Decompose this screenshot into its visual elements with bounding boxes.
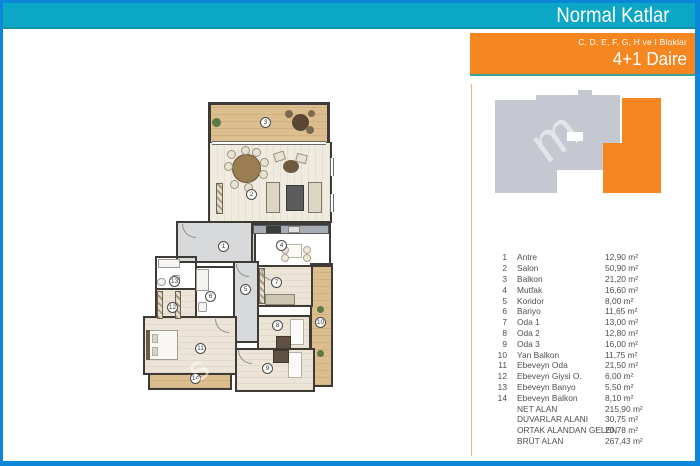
bathtub <box>158 259 180 268</box>
room-no: 14 <box>493 393 507 403</box>
room-name: Oda 2 <box>517 328 605 338</box>
dining-table <box>232 154 261 183</box>
desk-chair <box>273 350 289 363</box>
room-row: 11Ebeveyn Oda21,50 m² <box>493 360 685 371</box>
room-marker: 13 <box>169 276 180 287</box>
summary-label: ORTAK ALANDAN GELEN <box>517 425 605 435</box>
header-band: Normal Katlar <box>3 3 695 29</box>
room-marker: 7 <box>271 277 282 288</box>
toilet <box>198 302 207 312</box>
floorplan-flyer: Normal Katlar C, D, E, F, G, H ve I Blok… <box>0 0 700 466</box>
radiator <box>216 183 223 214</box>
room-no: 8 <box>493 328 507 338</box>
summary-area: 215,90 m² <box>605 404 685 414</box>
room-area: 21,50 m² <box>605 360 685 370</box>
building-footprint-map: m <box>490 88 670 200</box>
room-no: 10 <box>493 350 507 360</box>
room-row: 8Oda 212,80 m² <box>493 328 685 339</box>
room-no: 5 <box>493 296 507 306</box>
kitchen-chair <box>303 254 311 262</box>
summary-label: BRÜT ALAN <box>517 436 605 446</box>
room-row: 4Mutfak16,60 m² <box>493 284 685 295</box>
room-row: 12Ebeveyn Giysi O.6,00 m² <box>493 371 685 382</box>
room-marker: 3 <box>260 117 271 128</box>
room-no: 2 <box>493 263 507 273</box>
floor-plan: 1 2 3 4 5 6 7 8 9 10 11 12 13 14 s <box>140 98 345 398</box>
desk <box>288 352 302 378</box>
plant-icon <box>212 118 221 127</box>
room-row: 13Ebeveyn Banyo5,50 m² <box>493 382 685 393</box>
dining-chair <box>241 146 250 155</box>
room-name: Balkon <box>517 274 605 284</box>
room-row: 9Oda 316,00 m² <box>493 338 685 349</box>
plant-icon <box>317 350 324 357</box>
room-name: Koridor <box>517 296 605 306</box>
footprint-highlight-upper <box>622 98 661 144</box>
room-area: 5,50 m² <box>605 382 685 392</box>
room-name: Oda 3 <box>517 339 605 349</box>
room-no: 9 <box>493 339 507 349</box>
balcony-chair <box>306 126 314 134</box>
pillow <box>152 334 158 343</box>
room-name: Salon <box>517 263 605 273</box>
room-no: 3 <box>493 274 507 284</box>
sofa <box>308 182 322 213</box>
room-marker: 14 <box>190 373 201 384</box>
tv-unit <box>286 185 304 211</box>
footprint-block-bump <box>578 90 592 96</box>
unit-badge-blocks: C, D, E, F, G, H ve I Bloklar <box>470 37 687 47</box>
dining-chair <box>252 148 261 157</box>
summary-area: 30,75 m² <box>605 414 685 424</box>
room-no: 13 <box>493 382 507 392</box>
page-title: Normal Katlar <box>556 4 669 28</box>
plant-icon <box>317 306 324 313</box>
room-area: 16,00 m² <box>605 339 685 349</box>
room-row: 10Yan Balkon11,75 m² <box>493 349 685 360</box>
balcony-chair <box>285 110 293 118</box>
room-area: 6,00 m² <box>605 371 685 381</box>
kitchen-chair <box>303 246 311 254</box>
room-no: 7 <box>493 317 507 327</box>
room-row: 2Salon50,90 m² <box>493 263 685 274</box>
room-marker: 6 <box>205 291 216 302</box>
room-name: Banyo <box>517 306 605 316</box>
room-marker: 10 <box>315 317 326 328</box>
dining-chair <box>260 158 269 167</box>
dining-chair <box>230 180 239 189</box>
coffee-table <box>283 160 299 173</box>
room-marker: 8 <box>272 320 283 331</box>
footprint-highlight-lower <box>603 143 661 193</box>
summary-area: 20,78 m² <box>605 425 685 435</box>
room-area: 12,80 m² <box>605 328 685 338</box>
room-name: Ebeveyn Balkon <box>517 393 605 403</box>
room-name: Ebeveyn Giysi O. <box>517 371 605 381</box>
wardrobe <box>157 291 163 319</box>
room-marker: 2 <box>246 189 257 200</box>
room-marker: 1 <box>218 241 229 252</box>
balcony-chair <box>308 110 315 117</box>
room-marker: 11 <box>195 343 206 354</box>
room-name: Ebeveyn Oda <box>517 360 605 370</box>
room-marker: 4 <box>276 240 287 251</box>
desk-chair <box>276 336 291 349</box>
room-name: Oda 1 <box>517 317 605 327</box>
bed-headboard <box>146 330 150 360</box>
dining-chair <box>259 170 268 179</box>
frame-bottom <box>0 461 700 466</box>
unit-badge-type: 4+1 Daire <box>487 48 687 70</box>
frame-right <box>695 0 700 466</box>
bed <box>146 330 178 360</box>
panel-divider <box>471 84 472 456</box>
summary-area: 267,43 m² <box>605 436 685 446</box>
window-salon-balkon <box>212 141 326 145</box>
room-area: 13,00 m² <box>605 317 685 327</box>
dining-chair <box>224 162 233 171</box>
pillow <box>152 347 158 356</box>
room-area: 8,10 m² <box>605 393 685 403</box>
summary-row: NET ALAN215,90 m² <box>493 403 685 414</box>
room-no: 6 <box>493 306 507 316</box>
dining-chair <box>227 150 236 159</box>
room-row: 3Balkon21,20 m² <box>493 274 685 285</box>
window-salon-right-1 <box>330 158 334 176</box>
summary-label: NET ALAN <box>517 404 605 414</box>
summary-row: ORTAK ALANDAN GELEN20,78 m² <box>493 425 685 436</box>
window-salon-right-2 <box>330 194 334 212</box>
room-area: 11,65 m² <box>605 306 685 316</box>
room-area: 16,60 m² <box>605 285 685 295</box>
desk <box>290 319 304 345</box>
kitchen-chair <box>281 254 289 262</box>
room-row: 14Ebeveyn Balkon8,10 m² <box>493 392 685 403</box>
daybed <box>265 294 295 305</box>
room-no: 4 <box>493 285 507 295</box>
shower <box>196 269 209 291</box>
room-area: 12,90 m² <box>605 252 685 262</box>
frame-left <box>0 0 3 466</box>
room-no: 11 <box>493 360 507 370</box>
unit-badge: C, D, E, F, G, H ve I Bloklar 4+1 Daire <box>470 33 695 76</box>
room-area: 50,90 m² <box>605 263 685 273</box>
stove <box>266 226 281 233</box>
room-marker: 5 <box>240 284 251 295</box>
room-list: 1Antre12,90 m² 2Salon50,90 m² 3Balkon21,… <box>493 252 685 446</box>
summary-row: BRÜT ALAN267,43 m² <box>493 436 685 447</box>
room-name: Mutfak <box>517 285 605 295</box>
sink <box>157 278 166 286</box>
sink <box>288 226 300 233</box>
room-area: 11,75 m² <box>605 350 685 360</box>
footprint-notch <box>567 132 583 141</box>
room-no: 1 <box>493 252 507 262</box>
room-name: Ebeveyn Banyo <box>517 382 605 392</box>
room-row: 5Koridor8,00 m² <box>493 295 685 306</box>
sofa <box>266 182 280 213</box>
room-row: 6Banyo11,65 m² <box>493 306 685 317</box>
summary-label: DUVARLAR ALANI <box>517 414 605 424</box>
room-area: 21,20 m² <box>605 274 685 284</box>
room-no: 12 <box>493 371 507 381</box>
summary-row: DUVARLAR ALANI30,75 m² <box>493 414 685 425</box>
room-area: 8,00 m² <box>605 296 685 306</box>
room-name: Antre <box>517 252 605 262</box>
room-marker: 12 <box>167 302 178 313</box>
room-marker: 9 <box>262 363 273 374</box>
room-name: Yan Balkon <box>517 350 605 360</box>
room-row: 1Antre12,90 m² <box>493 252 685 263</box>
room-row: 7Oda 113,00 m² <box>493 317 685 328</box>
